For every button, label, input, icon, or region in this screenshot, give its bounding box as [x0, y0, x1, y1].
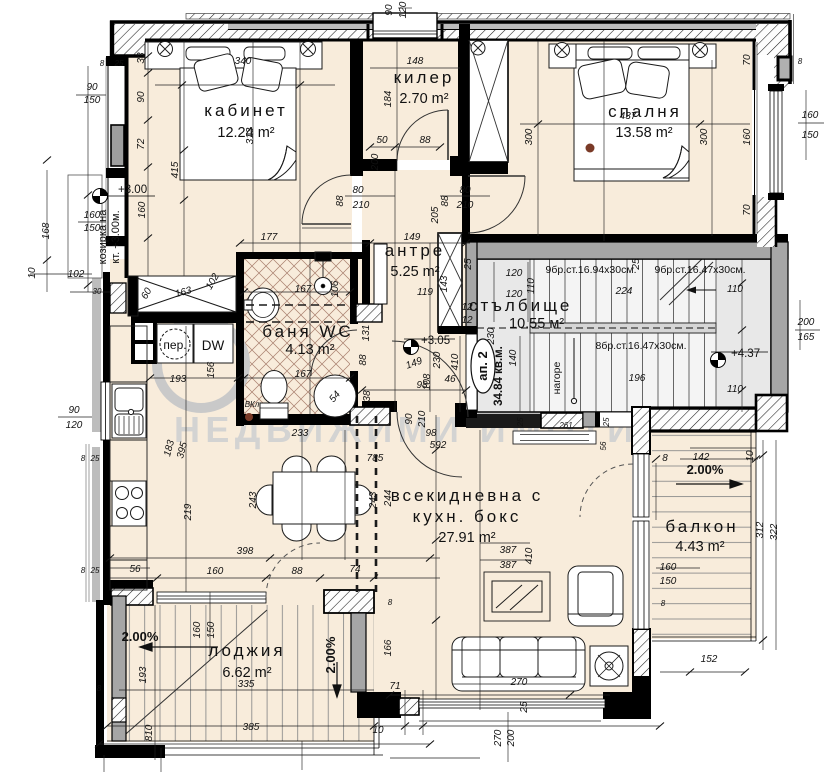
- svg-text:80: 80: [352, 185, 364, 196]
- svg-text:27.91 m²: 27.91 m²: [438, 530, 495, 546]
- svg-text:34.84 кв.м.: 34.84 кв.м.: [493, 346, 505, 406]
- svg-text:46: 46: [444, 374, 456, 385]
- svg-text:167: 167: [295, 369, 312, 380]
- svg-text:270: 270: [493, 729, 504, 747]
- svg-text:12.24 m²: 12.24 m²: [217, 125, 274, 141]
- svg-text:160: 160: [192, 621, 203, 638]
- svg-text:160: 160: [802, 110, 819, 121]
- svg-text:8: 8: [798, 57, 803, 66]
- svg-text:8: 8: [388, 598, 393, 607]
- svg-text:98: 98: [425, 428, 437, 439]
- svg-text:233: 233: [291, 428, 309, 439]
- svg-text:9бр.ст.16.94х30см.: 9бр.ст.16.94х30см.: [545, 264, 636, 276]
- svg-text:4.13 m²: 4.13 m²: [285, 342, 334, 358]
- svg-text:пер.: пер.: [163, 338, 186, 352]
- svg-text:160: 160: [207, 566, 224, 577]
- svg-text:385: 385: [243, 722, 260, 733]
- svg-text:131: 131: [361, 325, 372, 342]
- svg-text:+3.05: +3.05: [421, 335, 450, 347]
- svg-text:312: 312: [755, 521, 766, 538]
- svg-text:56: 56: [599, 441, 608, 450]
- svg-text:козирка на: козирка на: [97, 209, 109, 265]
- svg-text:килер: килер: [394, 68, 455, 87]
- svg-text:антре: антре: [385, 241, 446, 260]
- svg-text:300: 300: [524, 128, 535, 145]
- svg-text:592: 592: [430, 440, 447, 451]
- svg-text:80: 80: [459, 185, 471, 196]
- svg-text:98: 98: [416, 380, 428, 391]
- svg-text:120: 120: [506, 268, 523, 279]
- svg-text:90: 90: [86, 82, 98, 93]
- svg-text:140: 140: [508, 349, 519, 366]
- svg-text:165: 165: [798, 332, 815, 343]
- svg-text:25: 25: [90, 454, 100, 463]
- svg-text:8бр.ст.16.47х30см.: 8бр.ст.16.47х30см.: [595, 340, 686, 352]
- svg-text:88: 88: [291, 566, 303, 577]
- svg-text:322: 322: [769, 523, 780, 540]
- svg-text:5.25 m²: 5.25 m²: [390, 264, 439, 280]
- svg-text:74: 74: [349, 564, 361, 575]
- svg-text:177: 177: [261, 232, 278, 243]
- svg-text:DW: DW: [202, 338, 225, 353]
- svg-text:25: 25: [463, 258, 474, 271]
- svg-text:70: 70: [742, 204, 753, 216]
- svg-text:210: 210: [352, 200, 370, 211]
- svg-text:56: 56: [129, 564, 141, 575]
- svg-text:70: 70: [742, 54, 753, 66]
- svg-text:120: 120: [66, 420, 83, 431]
- svg-text:415: 415: [170, 161, 181, 178]
- svg-text:25: 25: [602, 417, 611, 427]
- svg-text:12: 12: [461, 315, 473, 326]
- svg-text:25: 25: [516, 417, 525, 427]
- svg-text:71: 71: [389, 681, 400, 692]
- svg-text:88: 88: [440, 195, 451, 207]
- svg-text:143: 143: [439, 275, 450, 292]
- svg-text:196: 196: [629, 373, 646, 384]
- svg-text:ВКл: ВКл: [245, 400, 260, 409]
- svg-text:ап. 2: ап. 2: [475, 351, 490, 381]
- svg-text:166: 166: [383, 639, 394, 656]
- svg-text:110: 110: [526, 278, 537, 294]
- svg-text:193: 193: [170, 374, 187, 385]
- svg-text:38: 38: [362, 390, 373, 402]
- svg-text:спалня: спалня: [608, 102, 682, 121]
- svg-text:230: 230: [432, 351, 443, 369]
- svg-text:90: 90: [404, 413, 415, 425]
- svg-text:кабинет: кабинет: [204, 101, 288, 120]
- svg-text:205: 205: [430, 206, 441, 224]
- svg-text:200: 200: [797, 317, 815, 328]
- svg-text:119: 119: [417, 287, 433, 298]
- svg-text:6.62 m²: 6.62 m²: [222, 665, 271, 681]
- svg-text:243: 243: [368, 491, 379, 509]
- svg-text:387: 387: [500, 545, 517, 556]
- svg-text:398: 398: [237, 546, 254, 557]
- svg-text:8: 8: [97, 684, 102, 693]
- svg-text:810: 810: [144, 724, 155, 741]
- svg-text:всекидневна с: всекидневна с: [391, 486, 544, 505]
- svg-text:270: 270: [510, 677, 528, 688]
- svg-text:8: 8: [81, 566, 86, 575]
- svg-text:184: 184: [383, 90, 394, 107]
- svg-text:160: 160: [660, 562, 677, 573]
- svg-text:10.55 м²: 10.55 м²: [509, 316, 564, 332]
- svg-text:150: 150: [802, 130, 819, 141]
- svg-text:8: 8: [661, 599, 666, 608]
- svg-text:10: 10: [372, 725, 384, 736]
- svg-text:210: 210: [417, 410, 428, 428]
- svg-text:210: 210: [456, 200, 474, 211]
- svg-text:10: 10: [745, 450, 756, 462]
- svg-text:88: 88: [419, 135, 431, 146]
- svg-text:300: 300: [699, 128, 710, 145]
- svg-text:8: 8: [662, 453, 668, 464]
- svg-text:8: 8: [100, 59, 105, 68]
- svg-text:кт. +3.00м.: кт. +3.00м.: [110, 210, 122, 263]
- svg-text:балкон: балкон: [665, 517, 738, 536]
- svg-text:785: 785: [367, 453, 384, 464]
- svg-text:261: 261: [558, 421, 572, 430]
- svg-text:30: 30: [93, 287, 102, 296]
- svg-text:72: 72: [136, 138, 147, 150]
- svg-text:+4.37: +4.37: [731, 348, 760, 360]
- svg-text:150: 150: [660, 576, 677, 587]
- svg-text:88: 88: [358, 354, 369, 366]
- svg-text:168: 168: [41, 222, 52, 239]
- svg-text:8: 8: [81, 454, 86, 463]
- svg-text:10: 10: [27, 267, 38, 279]
- svg-text:243: 243: [248, 491, 259, 509]
- svg-text:152: 152: [701, 654, 718, 665]
- svg-text:410: 410: [450, 353, 461, 370]
- svg-text:120: 120: [398, 1, 409, 18]
- svg-text:50: 50: [376, 135, 388, 146]
- svg-text:193: 193: [138, 666, 149, 683]
- svg-text:нагоре: нагоре: [551, 361, 563, 394]
- svg-text:баня WC: баня WC: [262, 322, 353, 341]
- svg-text:150: 150: [84, 95, 101, 106]
- svg-text:+3.00: +3.00: [118, 184, 147, 196]
- svg-text:106: 106: [330, 280, 341, 297]
- svg-text:33: 33: [136, 52, 147, 64]
- svg-text:167: 167: [295, 284, 312, 295]
- svg-text:160: 160: [742, 128, 753, 145]
- svg-text:лоджия: лоджия: [208, 641, 285, 660]
- svg-text:219: 219: [183, 503, 194, 521]
- svg-text:88: 88: [335, 195, 346, 207]
- svg-text:25: 25: [519, 701, 530, 714]
- svg-text:156: 156: [206, 361, 217, 378]
- svg-text:200: 200: [506, 729, 517, 747]
- svg-text:148: 148: [407, 56, 424, 67]
- svg-text:110: 110: [727, 284, 743, 295]
- svg-text:340: 340: [235, 56, 252, 67]
- svg-text:9бр.ст.16.47х30см.: 9бр.ст.16.47х30см.: [654, 264, 745, 276]
- svg-text:2.70 m²: 2.70 m²: [399, 91, 448, 107]
- svg-text:102: 102: [68, 269, 85, 280]
- svg-text:200: 200: [370, 153, 381, 171]
- svg-text:410: 410: [524, 547, 535, 564]
- svg-text:150: 150: [206, 621, 217, 638]
- svg-text:387: 387: [500, 560, 517, 571]
- svg-text:стълбище: стълбище: [469, 296, 572, 315]
- svg-text:25: 25: [114, 59, 124, 68]
- svg-text:160: 160: [137, 201, 148, 218]
- svg-text:13.58 m²: 13.58 m²: [615, 125, 672, 141]
- svg-text:2.00%: 2.00%: [687, 462, 724, 477]
- svg-text:110: 110: [727, 384, 743, 395]
- svg-text:2.00%: 2.00%: [323, 636, 338, 673]
- svg-text:90: 90: [384, 4, 395, 16]
- svg-text:2.00%: 2.00%: [122, 629, 159, 644]
- svg-text:224: 224: [615, 286, 633, 297]
- svg-text:25: 25: [90, 566, 100, 575]
- svg-text:4.43 m²: 4.43 m²: [675, 539, 724, 555]
- svg-text:кухн. бокс: кухн. бокс: [413, 507, 522, 526]
- svg-text:90: 90: [68, 405, 80, 416]
- svg-text:90: 90: [136, 91, 147, 103]
